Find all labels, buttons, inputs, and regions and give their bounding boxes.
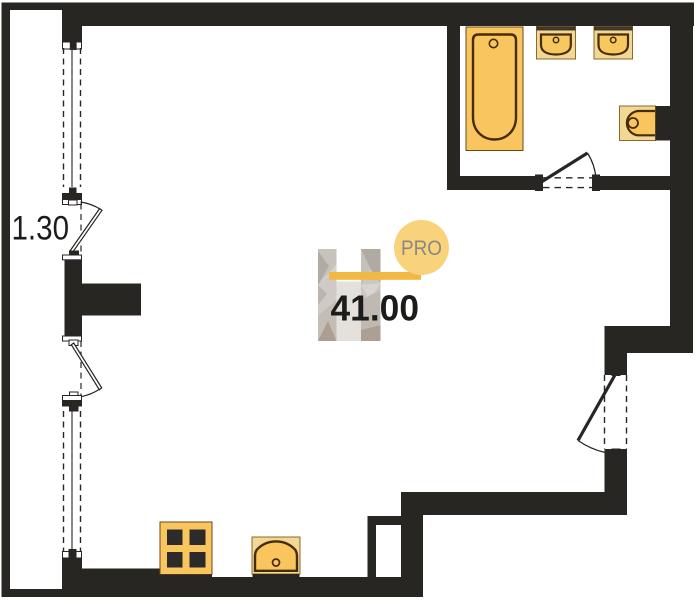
svg-text:PRO: PRO <box>401 236 442 260</box>
svg-text:1.30: 1.30 <box>12 210 70 248</box>
svg-text:41.00: 41.00 <box>331 288 420 329</box>
